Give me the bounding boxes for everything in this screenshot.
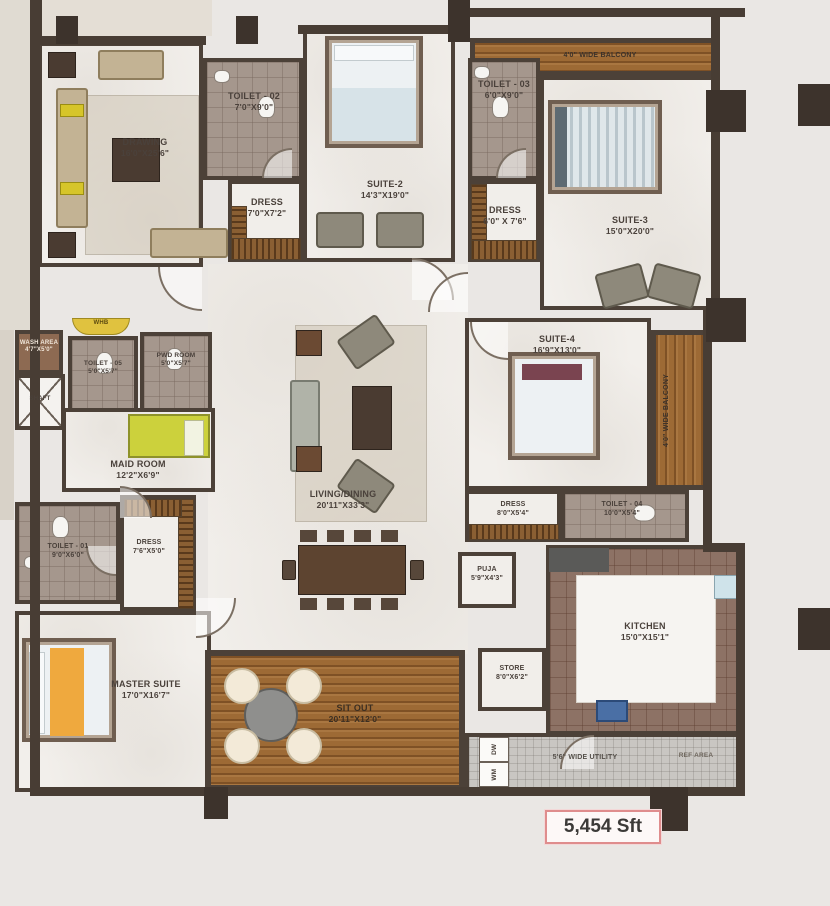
label-dress-2: DRESS7'0"X7'2" [232, 196, 302, 220]
dishwasher: DW [479, 737, 509, 762]
label-maid: MAID ROOM12'2"X6'9" [88, 458, 188, 482]
label-drawing: DRAWING16'0"X25'6" [90, 136, 200, 160]
room-name: MAID ROOM [88, 458, 188, 470]
room-dims: 5'0"X5'7" [142, 360, 210, 368]
dining-chair [282, 560, 296, 580]
patio-chair [286, 728, 322, 764]
neighbor-structure [0, 330, 14, 520]
pillows [555, 107, 567, 187]
pillow [184, 420, 204, 456]
label-master: MASTER SUITE17'0"X16'7" [86, 678, 206, 702]
wardrobe [469, 524, 559, 540]
dining-table [298, 545, 406, 595]
room-name: TOILET - 05 [70, 360, 136, 368]
armchair [316, 212, 364, 248]
counter-hob [714, 575, 738, 599]
room-dims: 5'0"X5'7" [70, 368, 136, 376]
washing-machine-label: WM [491, 769, 498, 781]
room-name: STORE [480, 664, 544, 673]
bed-suite-4 [508, 352, 600, 460]
cushion [60, 182, 84, 195]
wall-bottom-left [30, 787, 470, 796]
room-name: SIT OUT [300, 702, 410, 714]
room-dims: 4'7"X5'0" [17, 347, 61, 354]
room-pwd [140, 332, 212, 420]
patio-chair [224, 728, 260, 764]
room-dims: 15'0"X15'1" [575, 632, 715, 643]
room-dims: 7'6"X5'0" [122, 547, 176, 556]
room-name: SUITE-4 [505, 333, 609, 345]
room-dims: 16'9"X13'0" [505, 345, 609, 356]
pillar [798, 84, 830, 126]
sofa [98, 50, 164, 80]
room-name: DRESS [470, 204, 540, 216]
washing-machine: WM [479, 762, 509, 787]
patio-chair [224, 668, 260, 704]
room-name: 5'6" WIDE UTILITY [520, 753, 650, 762]
room-dims: 14'3"X19'0" [340, 190, 430, 201]
label-toilet-03: TOILET - 036'0"X9'0" [466, 78, 542, 102]
kitchen-sink [596, 700, 628, 722]
room-name: SUITE-2 [340, 178, 430, 190]
pillar [798, 608, 830, 650]
room-name: DRESS [232, 196, 302, 208]
room-dims: 7'0"X7'2" [232, 208, 302, 219]
label-shaft: SHAFT [17, 396, 63, 403]
room-name: DRESS [470, 500, 556, 509]
room-name: 4'0" WIDE BALCONY [520, 51, 680, 60]
room-name: TOILET - 04 [562, 500, 682, 509]
pillows [522, 364, 582, 380]
room-dims: 15'0"X20'0" [578, 226, 682, 237]
pillar [204, 787, 228, 819]
room-name: DRESS [122, 538, 176, 547]
room-dims: 8'0"X6'2" [480, 673, 544, 682]
room-name: TOILET - 01 [24, 542, 112, 551]
bed-maid [128, 414, 210, 458]
label-balcony-right: 4'0" WIDE BALCONY [662, 348, 698, 474]
pillar [706, 90, 746, 132]
blanket [332, 88, 416, 141]
pillows [334, 45, 414, 61]
door-drawing [158, 267, 202, 311]
toilet-wc [52, 516, 69, 538]
wall-top-right [455, 8, 745, 17]
total-area-value: 5,454 Sft [564, 816, 642, 838]
label-kitchen: KITCHEN15'0"X15'1" [575, 620, 715, 644]
label-utility: 5'6" WIDE UTILITY [520, 753, 650, 762]
patio-chair [286, 668, 322, 704]
bed-suite-2 [325, 36, 423, 148]
room-dims: 6'0"X9'0" [466, 90, 542, 101]
wardrobe [471, 240, 537, 260]
room-dims: 20'11"X33'3" [278, 500, 408, 511]
room-name: TOILET - 02 [208, 90, 300, 102]
wall-top-suite2 [298, 25, 458, 34]
side-table [48, 52, 76, 78]
armchair [376, 212, 424, 248]
room-name: 4'0" WIDE BALCONY [662, 348, 671, 474]
label-dress-1: DRESS7'6"X5'0" [122, 538, 176, 557]
label-toilet-04: TOILET - 0410'0"X5'4" [562, 500, 682, 519]
coffee-table [352, 386, 392, 450]
side-table [296, 330, 322, 356]
room-name: SHAFT [17, 396, 63, 403]
room-dims: 5'9"X4'3" [459, 574, 515, 583]
room-dims: 10'0"X5'4" [562, 509, 682, 518]
room-dims: 17'0"X16'7" [86, 690, 206, 701]
label-puja: PUJA5'9"X4'3" [459, 565, 515, 584]
label-whb: WHB [86, 320, 116, 327]
label-sit-out: SIT OUT20'11"X12'0" [300, 702, 410, 726]
label-suite-3: SUITE-315'0"X20'0" [578, 214, 682, 238]
neighbor-structure [0, 0, 30, 330]
wash-basin [214, 70, 230, 83]
room-dims: 8'0"X5'4" [470, 509, 556, 518]
label-pwd: PWD ROOM5'0"X5'7" [142, 352, 210, 368]
room-dims: 12'2"X6'9" [88, 470, 188, 481]
dishwasher-label: DW [491, 744, 498, 755]
label-store: STORE8'0"X6'2" [480, 664, 544, 683]
label-dress-4: DRESS8'0"X5'4" [470, 500, 556, 519]
room-name: SUITE-3 [578, 214, 682, 226]
total-area-badge: 5,454 Sft [545, 810, 661, 844]
room-dims: 6'0" X 7'6" [470, 216, 540, 227]
dining-chairs [300, 598, 408, 610]
room-name: DRAWING [90, 136, 200, 148]
mattress [555, 107, 655, 187]
pillar [56, 16, 78, 44]
room-name: REF AREA [666, 752, 726, 760]
fridge [549, 548, 609, 572]
room-dims: 16'0"X25'6" [90, 148, 200, 159]
label-toilet-01: TOILET - 019'0"X6'0" [24, 542, 112, 561]
side-table [48, 232, 76, 258]
label-suite-4: SUITE-416'9"X13'0" [505, 333, 609, 357]
label-balcony-top: 4'0" WIDE BALCONY [520, 51, 680, 60]
room-name: WHB [86, 320, 116, 327]
pillar [236, 16, 258, 44]
wall-bottom-right [460, 787, 745, 796]
label-toilet-02: TOILET - 027'0"X9'0" [208, 90, 300, 114]
cushion [60, 104, 84, 117]
floor-plan: DRAWING16'0"X25'6" TOILET - 027'0"X9'0" … [0, 0, 830, 906]
label-toilet-05: TOILET - 055'0"X5'7" [70, 360, 136, 376]
room-name: PUJA [459, 565, 515, 574]
label-living: LIVING/DINING20'11"X33'3" [278, 488, 408, 512]
wall-right-kitchen [736, 545, 745, 793]
wall-right-mid [703, 310, 712, 550]
label-dress-3: DRESS6'0" X 7'6" [470, 204, 540, 228]
label-suite-2: SUITE-214'3"X19'0" [340, 178, 430, 202]
room-name: KITCHEN [575, 620, 715, 632]
pillar [448, 0, 470, 42]
room-dims: 7'0"X9'0" [208, 102, 300, 113]
room-name: TOILET - 03 [466, 78, 542, 90]
room-name: MASTER SUITE [86, 678, 206, 690]
wardrobe [231, 238, 301, 260]
room-dims: 9'0"X6'0" [24, 551, 112, 560]
room-name: WASH AREA [17, 340, 61, 347]
dining-chair [410, 560, 424, 580]
wall-left [30, 36, 40, 794]
side-table [296, 446, 322, 472]
room-name: PWD ROOM [142, 352, 210, 360]
wall-right-upper [711, 8, 720, 310]
room-name: LIVING/DINING [278, 488, 408, 500]
label-wash-area: WASH AREA4'7"X5'0" [17, 340, 61, 354]
blanket [50, 648, 84, 736]
pillar [706, 298, 746, 342]
bed-suite-3 [548, 100, 662, 194]
sofa [150, 228, 228, 258]
label-ref-area: REF AREA [666, 752, 726, 760]
dining-chairs [300, 530, 408, 542]
room-dims: 20'11"X12'0" [300, 714, 410, 725]
